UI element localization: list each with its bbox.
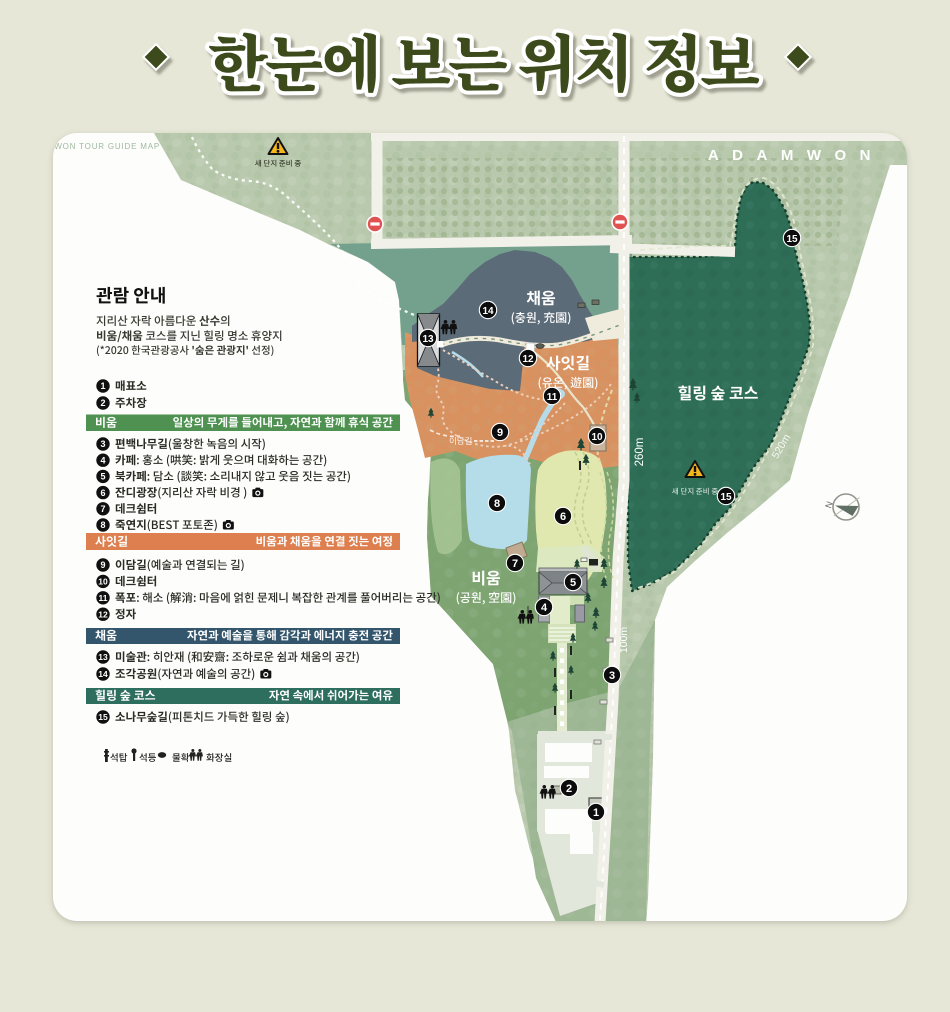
svg-text:15: 15 xyxy=(786,234,798,245)
svg-text:ADAMWON: ADAMWON xyxy=(708,147,884,164)
svg-text:8: 8 xyxy=(494,498,500,510)
svg-text:6: 6 xyxy=(560,511,566,523)
svg-text:4: 4 xyxy=(541,602,548,614)
svg-text:14: 14 xyxy=(98,669,108,679)
svg-text:N: N xyxy=(823,500,835,510)
svg-text:ADAMWON TOUR GUIDE MAP: ADAMWON TOUR GUIDE MAP xyxy=(53,142,160,151)
svg-text:10: 10 xyxy=(98,577,108,587)
svg-text:11: 11 xyxy=(99,593,108,603)
svg-text:9: 9 xyxy=(497,427,503,439)
svg-text:8: 8 xyxy=(100,520,105,530)
svg-text:4: 4 xyxy=(100,455,105,465)
svg-text:2: 2 xyxy=(100,398,105,408)
svg-text:13: 13 xyxy=(422,334,434,345)
svg-text:15: 15 xyxy=(720,492,732,503)
svg-text:7: 7 xyxy=(100,504,105,514)
svg-text:3: 3 xyxy=(609,670,615,682)
svg-text:100m: 100m xyxy=(618,627,630,654)
svg-text:6: 6 xyxy=(100,488,105,498)
svg-text:2: 2 xyxy=(566,783,572,795)
svg-text:9: 9 xyxy=(100,560,105,570)
svg-text:11: 11 xyxy=(547,392,558,403)
svg-text:12: 12 xyxy=(522,354,534,365)
svg-text:13: 13 xyxy=(98,652,108,662)
svg-text:14: 14 xyxy=(482,306,494,317)
svg-text:15: 15 xyxy=(98,712,108,722)
svg-text:7: 7 xyxy=(512,558,518,570)
svg-text:1: 1 xyxy=(100,381,105,391)
svg-text:12: 12 xyxy=(98,609,108,619)
svg-text:5: 5 xyxy=(100,472,105,482)
svg-text:3: 3 xyxy=(100,439,105,449)
svg-text:10: 10 xyxy=(591,432,603,443)
svg-text:260m: 260m xyxy=(634,438,646,467)
svg-text:1: 1 xyxy=(593,807,599,819)
svg-text:5: 5 xyxy=(570,577,576,589)
